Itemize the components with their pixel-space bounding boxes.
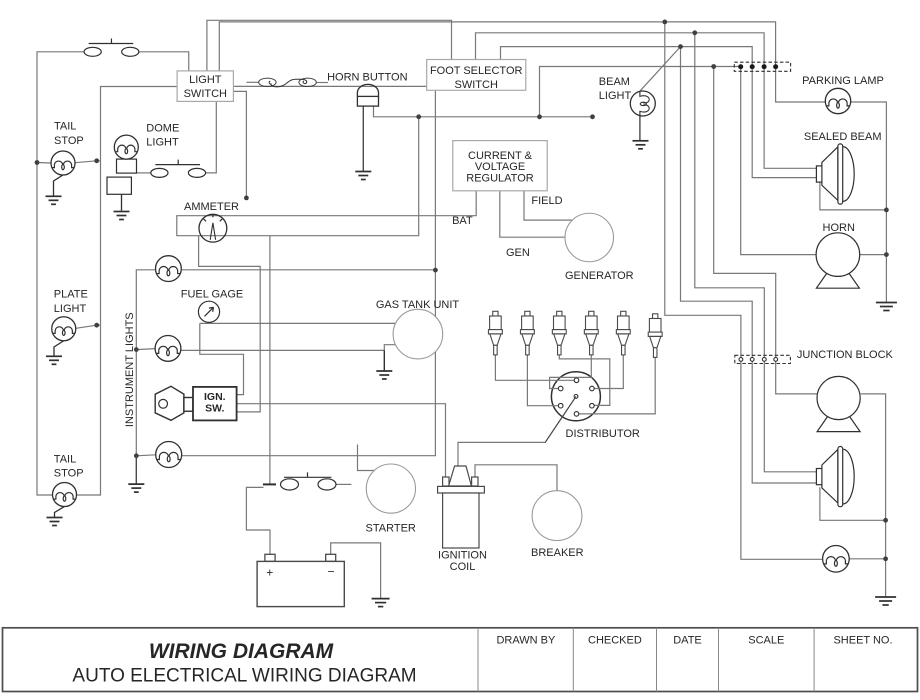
svg-text:SCALE: SCALE [748, 635, 784, 647]
svg-text:LIGHT: LIGHT [54, 303, 87, 315]
svg-text:IGNITION: IGNITION [438, 549, 487, 561]
svg-text:GENERATOR: GENERATOR [565, 270, 634, 282]
svg-text:COIL: COIL [450, 561, 476, 573]
svg-text:SHEET NO.: SHEET NO. [833, 635, 892, 647]
svg-text:AUTO ELECTRICAL WIRING DIAGRAM: AUTO ELECTRICAL WIRING DIAGRAM [72, 666, 416, 687]
svg-text:INSTRUMENT LIGHTS: INSTRUMENT LIGHTS [124, 312, 136, 427]
svg-text:STOP: STOP [54, 467, 84, 479]
svg-text:REGULATOR: REGULATOR [466, 172, 533, 184]
svg-text:VOLTAGE: VOLTAGE [475, 161, 525, 173]
svg-text:TAIL: TAIL [54, 121, 76, 133]
svg-text:DISTRIBUTOR: DISTRIBUTOR [566, 428, 640, 440]
svg-text:SWITCH: SWITCH [184, 88, 227, 100]
svg-text:SEALED BEAM: SEALED BEAM [804, 131, 882, 143]
svg-text:DATE: DATE [673, 635, 702, 647]
svg-text:IGN.: IGN. [204, 391, 226, 403]
svg-text:SWITCH: SWITCH [455, 79, 498, 91]
svg-text:HORN BUTTON: HORN BUTTON [327, 72, 408, 84]
svg-text:GEN: GEN [506, 247, 530, 259]
svg-text:FOOT SELECTOR: FOOT SELECTOR [430, 65, 523, 77]
svg-text:WIRING DIAGRAM: WIRING DIAGRAM [149, 640, 334, 663]
svg-text:LIGHT: LIGHT [189, 74, 222, 86]
svg-text:HORN: HORN [823, 222, 855, 234]
svg-text:FIELD: FIELD [531, 195, 562, 207]
svg-text:+: + [266, 566, 273, 580]
svg-text:SW.: SW. [205, 402, 224, 414]
svg-text:AMMETER: AMMETER [184, 201, 239, 213]
svg-text:STOP: STOP [54, 135, 84, 147]
svg-text:JUNCTION BLOCK: JUNCTION BLOCK [797, 349, 894, 361]
svg-text:FUEL GAGE: FUEL GAGE [181, 289, 244, 301]
svg-text:GAS TANK UNIT: GAS TANK UNIT [376, 299, 460, 311]
svg-text:BEAM: BEAM [599, 76, 630, 88]
svg-text:TAIL: TAIL [54, 454, 76, 466]
svg-text:BREAKER: BREAKER [531, 547, 584, 559]
svg-text:BAT: BAT [452, 215, 473, 227]
svg-text:CURRENT &: CURRENT & [468, 150, 533, 162]
svg-text:PARKING LAMP: PARKING LAMP [802, 75, 884, 87]
svg-text:STARTER: STARTER [366, 522, 416, 534]
svg-text:DOME: DOME [146, 122, 179, 134]
svg-text:−: − [327, 565, 334, 579]
svg-text:LIGHT: LIGHT [599, 90, 632, 102]
svg-text:PLATE: PLATE [54, 289, 88, 301]
svg-text:LIGHT: LIGHT [146, 137, 179, 149]
svg-text:DRAWN BY: DRAWN BY [496, 635, 556, 647]
svg-text:CHECKED: CHECKED [588, 635, 642, 647]
